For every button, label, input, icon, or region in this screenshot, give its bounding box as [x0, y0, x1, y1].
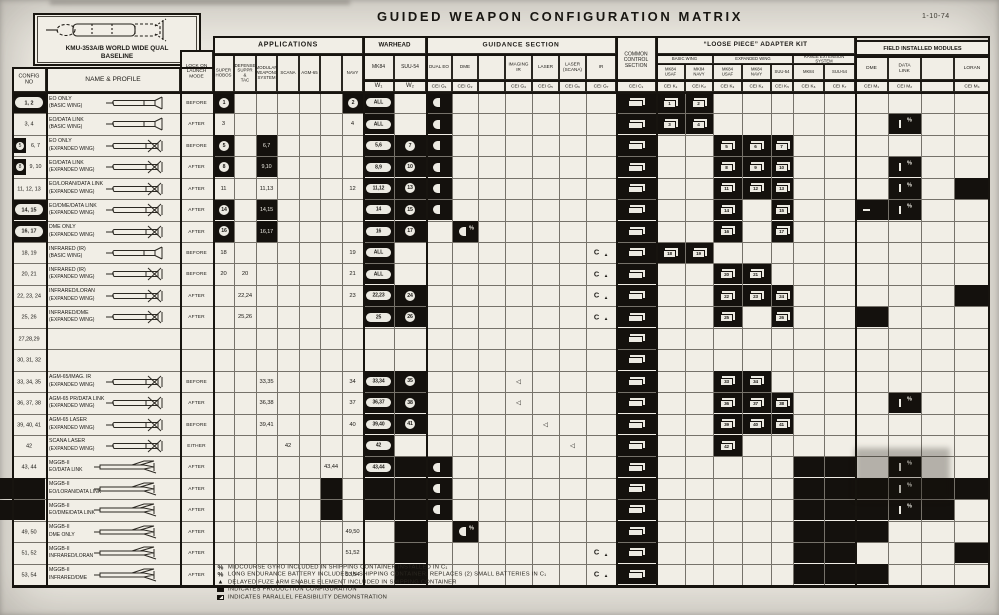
- mark-3d-box: [628, 122, 643, 129]
- mark-battery-bar: [899, 506, 902, 514]
- grid-line-v: [180, 50, 182, 585]
- header-guidance-col-label: IR: [586, 57, 616, 77]
- mark-circle-number: 35: [405, 376, 415, 386]
- launch-mode-cell: AFTER: [180, 456, 213, 477]
- grid-line-h: [213, 54, 616, 56]
- mark-config-number: 36,38: [256, 392, 277, 413]
- config-cell-blackout: [0, 478, 45, 498]
- mark-filled-cell: [856, 521, 888, 541]
- header-loose-col-label: MK84 USAF: [656, 65, 685, 79]
- weapon-profile-icon: [104, 289, 174, 303]
- config-chip-number: 8: [16, 163, 24, 171]
- mark-3d-box-number: 14: [720, 207, 733, 215]
- header-field-col-label: DATA LINK: [888, 58, 921, 78]
- header-guidance-cei: [478, 80, 505, 92]
- grid-line-v: [855, 36, 857, 585]
- grid-line-v: [363, 36, 365, 585]
- mark-3d-box-number: 10: [775, 164, 788, 172]
- mark-3d-box-number: 2: [692, 100, 705, 108]
- header-loose-cei-label: CEI K₅: [771, 81, 793, 92]
- mark-3d-box: [628, 229, 643, 236]
- mark-3d-box-number: 21: [749, 271, 762, 279]
- mark-pill-text: 5,6: [366, 141, 391, 150]
- mark-filled-cell: [794, 543, 824, 563]
- legend-text: MIDCOURSE GYRO INCLUDED IN SHIPPING CONT…: [228, 564, 648, 571]
- ir-half-circle-glyph: C: [592, 269, 601, 280]
- mark-pill-text: 43,44: [366, 463, 391, 472]
- mark-filled-cell: [856, 500, 888, 520]
- mark-3d-box-number: 41: [775, 421, 788, 429]
- mark-pill-text: ALL: [366, 248, 391, 257]
- header-guidance-cei-label: CEI G₇: [586, 81, 616, 92]
- legend-production-square: [217, 587, 224, 592]
- mark-3d-box: [628, 529, 643, 536]
- weapon-profile-icon: [92, 568, 178, 582]
- mark-filled-cell: [794, 457, 824, 477]
- mark-3d-box-number: 26: [775, 314, 788, 322]
- grid-line-v: [656, 36, 658, 585]
- weapon-profile-icon: [104, 225, 174, 239]
- weapon-profile-icon: [104, 182, 174, 196]
- mark-filled-cell: [395, 543, 426, 563]
- weapon-profile-icon: [92, 503, 178, 517]
- mark-config-number: 25,26: [234, 306, 256, 327]
- header-group-guidance-label: GUIDANCE SECTION: [426, 36, 616, 54]
- fuze-triangle-glyph: ▲: [602, 315, 610, 323]
- grid-line-v: [46, 67, 48, 585]
- mark-circle-number: 24: [405, 291, 415, 301]
- mark-filled-cell: [955, 178, 990, 198]
- mark-3d-box: [628, 250, 643, 257]
- mark-battery-percent: %: [905, 202, 914, 210]
- mark-filled-cell: [825, 543, 855, 563]
- mark-config-number: 37: [342, 392, 363, 413]
- page-title: GUIDED WEAPON CONFIGURATION MATRIX: [300, 8, 820, 24]
- mark-filled-cell: [321, 500, 342, 520]
- mark-3d-box: [628, 507, 643, 514]
- mark-3d-box-number: 23: [749, 293, 762, 301]
- ir-half-circle-glyph: C: [592, 290, 601, 301]
- weapon-profile-icon: [104, 96, 174, 110]
- mark-gyro-percent: %: [467, 224, 476, 232]
- scan-smudge-right: [855, 448, 950, 500]
- mark-battery-percent: %: [905, 502, 914, 510]
- mark-circle-number: 15: [405, 205, 415, 215]
- mark-pill-text: 39,40: [366, 420, 391, 429]
- mark-open-triangle: ◁: [505, 371, 532, 392]
- legend-text: DELAYED FUZE ARM ENABLE ELEMENT INCLUDED…: [228, 579, 648, 586]
- mark-circle-number: 26: [405, 312, 415, 322]
- fuze-triangle-glyph: ▲: [602, 272, 610, 280]
- mark-open-triangle: ◁: [559, 435, 586, 456]
- header-app-col-label: SUPER HOBOS: [213, 55, 234, 91]
- launch-mode-cell: AFTER: [180, 306, 213, 327]
- mark-filled-cell: [825, 564, 855, 584]
- mark-dash: [863, 209, 870, 211]
- header-app-col-label: SCANA: [277, 55, 299, 91]
- mark-open-triangle: ◁: [505, 392, 532, 413]
- launch-mode-cell: EITHER: [180, 435, 213, 456]
- header-loose-cei-label: CEI K₆: [793, 81, 824, 92]
- mark-filled-cell: [825, 500, 855, 520]
- mark-pill-text: 33,34: [366, 377, 391, 386]
- config-cell: 18, 19: [12, 242, 46, 263]
- weapon-profile-icon: [104, 203, 174, 217]
- header-loose-col-label: MK84 NAVY: [685, 65, 713, 79]
- mark-circle-number: 2: [348, 98, 358, 108]
- launch-mode-cell: AFTER: [180, 499, 213, 520]
- config-cell: 9, 10: [26, 156, 45, 177]
- missile-icon: [42, 17, 192, 43]
- mark-feasibility-half-circle: [433, 120, 440, 129]
- mark-3d-box-number: 25: [720, 314, 733, 322]
- config-cell: 42: [12, 435, 46, 456]
- mark-3d-box: [628, 186, 643, 193]
- mark-feasibility-half-circle: [459, 527, 466, 536]
- mark-filled-cell: [922, 500, 954, 520]
- legend-text: INDICATES PARALLEL FEASIBILITY DEMONSTRA…: [228, 594, 648, 601]
- mark-3d-box: [628, 100, 643, 107]
- mark-3d-box-number: 5: [720, 143, 733, 151]
- scan-smudge-top: [50, 0, 350, 5]
- weapon-profile-icon: [104, 117, 174, 131]
- header-group-common-control-label: COMMON CONTROL SECTION: [616, 42, 656, 78]
- mark-config-number: 18: [213, 242, 234, 263]
- mark-filled-cell: [794, 500, 824, 520]
- config-cell: 53, 54: [12, 564, 46, 585]
- grid-line-h: [180, 50, 213, 52]
- header-field-cei: [921, 80, 954, 92]
- mark-config-number: 21: [342, 263, 363, 284]
- legend-feasibility-square: [217, 595, 224, 600]
- mark-3d-box: [628, 165, 643, 172]
- header-guidance-cei-label: CEI G₂: [452, 81, 478, 92]
- mark-config-number: 11: [213, 178, 234, 199]
- mark-filled-cell: [825, 521, 855, 541]
- config-cell: 20, 21: [12, 263, 46, 284]
- mark-config-number-light: 6,7: [256, 135, 277, 156]
- mark-filled-cell: [395, 478, 426, 498]
- mark-circle-number: 13: [405, 183, 415, 193]
- config-cell: 16, 17: [15, 226, 43, 236]
- mark-pill-text: ALL: [366, 120, 391, 129]
- launch-mode-cell: AFTER: [180, 542, 213, 563]
- header-guidance-cei-label: CEI G₁: [426, 81, 452, 92]
- config-cell: 3, 4: [12, 113, 46, 134]
- mark-3d-box: [628, 315, 643, 322]
- grid-line-h: [855, 56, 990, 58]
- mark-battery-bar: [899, 163, 902, 171]
- mark-circle-number: 38: [405, 398, 415, 408]
- mark-3d-box: [628, 272, 643, 279]
- mark-3d-box-number: 11: [720, 185, 733, 193]
- mark-config-number: 51,52: [342, 542, 363, 563]
- legend-text: LONG ENDURANCE BATTERY INCLUDED IN SHIPP…: [228, 571, 648, 578]
- mark-3d-box-number: 42: [720, 443, 733, 451]
- mark-3d-box-number: 36: [720, 400, 733, 408]
- mark-config-number-light: 16,17: [256, 221, 277, 242]
- mark-open-triangle: ◁: [532, 414, 559, 435]
- header-loose-cei-label: CEI K₁: [656, 81, 685, 92]
- mark-filled-cell: [364, 478, 394, 498]
- mark-circle-number: 16: [219, 226, 229, 236]
- fuze-triangle-glyph: ▲: [602, 294, 610, 302]
- mark-filled-cell: [856, 307, 888, 327]
- mark-3d-box-number: 12: [749, 185, 762, 193]
- header-field-col: [921, 56, 954, 80]
- mark-filled-cell: [364, 500, 394, 520]
- header-common-cei-label: CEI C₁: [616, 81, 656, 92]
- header-field-cei-label: CEI M₁: [855, 81, 888, 92]
- mark-3d-box: [628, 550, 643, 557]
- mark-config-number: 19: [342, 242, 363, 263]
- legend-text: INDICATES PRODUCTION CONFIGURATION: [228, 586, 648, 593]
- date-label: 1-10-74: [922, 13, 982, 23]
- mark-feasibility-half-circle: [433, 184, 440, 193]
- mark-pill-text: 8,9: [366, 163, 391, 172]
- legend-triangle-symbol: ▲: [216, 578, 225, 586]
- mark-3d-box-number: 34: [749, 378, 762, 386]
- mark-pill-text: 36,37: [366, 398, 391, 407]
- mark-filled-cell: [794, 478, 824, 498]
- mark-battery-bar: [899, 206, 902, 214]
- mark-circle-number: 17: [405, 226, 415, 236]
- mark-pill-text: 42: [366, 441, 391, 450]
- mark-filled-cell: [794, 521, 824, 541]
- mark-pill-text: 14: [366, 205, 391, 214]
- mark-3d-box-number: 22: [720, 293, 733, 301]
- header-field-col-label: LORAN: [954, 58, 990, 78]
- mark-circle-number: 10: [405, 162, 415, 172]
- mark-config-number: 43,44: [320, 456, 342, 477]
- header-config-label: CONFIG NO: [12, 69, 46, 90]
- header-field-cei-label: CEI M₂: [888, 81, 921, 92]
- mark-3d-box: [628, 400, 643, 407]
- grid-line-v: [426, 36, 428, 585]
- weapon-profile-icon: [92, 525, 178, 539]
- header-loose-cei-label: CEI K₂: [685, 81, 713, 92]
- mark-feasibility-half-circle: [433, 98, 440, 107]
- header-loose-col-label: MK84: [793, 65, 824, 79]
- mark-gyro-percent: %: [467, 524, 476, 532]
- mark-3d-box-number: 6: [749, 143, 762, 151]
- launch-mode-cell: AFTER: [180, 113, 213, 134]
- launch-mode-cell: AFTER: [180, 199, 213, 220]
- header-group-applications-label: APPLICATIONS: [213, 36, 363, 54]
- mark-3d-box-number: 19: [692, 250, 705, 258]
- table-row: [12, 349, 990, 370]
- weapon-profile-icon: [104, 439, 174, 453]
- grid-line-h: [656, 54, 855, 56]
- config-cell: 51, 52: [12, 542, 46, 563]
- launch-mode-cell: AFTER: [180, 221, 213, 242]
- mark-3d-box-number: 20: [720, 271, 733, 279]
- mark-config-number-light: 14,15: [256, 199, 277, 220]
- header-field-col-label: DME: [855, 58, 888, 78]
- header-group-field-modules-label: FIELD INSTALLED MODULES: [855, 42, 990, 55]
- launch-mode-cell: BEFORE: [180, 263, 213, 284]
- mark-feasibility-half-circle: [433, 205, 440, 214]
- grid-line-h: [12, 67, 213, 69]
- mark-3d-box-number: 13: [775, 185, 788, 193]
- weapon-profile-icon: [104, 375, 174, 389]
- config-chip-number: 5: [16, 142, 24, 150]
- ir-half-circle-glyph: C: [592, 547, 601, 558]
- config-cell: 39, 40, 41: [12, 414, 46, 435]
- mark-config-number: 4: [342, 113, 363, 134]
- mark-circle-number: 7: [405, 141, 415, 151]
- config-cell: 6, 7: [26, 135, 45, 156]
- header-warhead-cei-label: W₂: [394, 80, 426, 92]
- mark-pill-text: ALL: [366, 270, 391, 279]
- launch-mode-cell: AFTER: [180, 478, 213, 499]
- mark-config-number: 42: [277, 435, 299, 456]
- launch-mode-cell: AFTER: [180, 392, 213, 413]
- header-loose-col-label: SUU-54: [771, 65, 793, 79]
- mark-battery-percent: %: [905, 395, 914, 403]
- mark-circle-number: 41: [405, 419, 415, 429]
- mark-config-number: 20: [234, 263, 256, 284]
- header-guidance-col-label: LASER (SCANA): [559, 57, 586, 77]
- mark-3d-box-number: 24: [775, 293, 788, 301]
- mark-config-number: 33,35: [256, 371, 277, 392]
- mark-config-number: 49,50: [342, 521, 363, 542]
- grid-line-h: [363, 80, 990, 82]
- weapon-profile-icon: [104, 396, 174, 410]
- mark-feasibility-half-circle: [433, 505, 440, 514]
- weapon-profile-icon: [104, 160, 174, 174]
- mark-feasibility-half-circle: [433, 484, 440, 493]
- mark-pill-text: 25: [366, 313, 391, 322]
- mark-3d-box: [628, 486, 643, 493]
- mark-config-number: 22,24: [234, 285, 256, 306]
- config-cell: 49, 50: [12, 521, 46, 542]
- header-group-warhead-label: WARHEAD: [363, 36, 426, 54]
- header-loose-col-label: MK84 USAF: [713, 65, 742, 79]
- header-app-col-label: DEFENSE SUPPR & TAC: [234, 55, 256, 91]
- header-app-col-label: MODULAR WEAPONS SYSTEM: [256, 55, 277, 91]
- fuze-triangle-glyph: ▲: [602, 551, 610, 559]
- weapon-profile-icon: [92, 460, 178, 474]
- mark-3d-box: [628, 357, 643, 364]
- ir-half-circle-glyph: C: [592, 312, 601, 323]
- config-cell: 33, 34, 35: [12, 371, 46, 392]
- header-name-label: NAME & PROFILE: [46, 69, 180, 90]
- mark-3d-box-number: 39: [720, 421, 733, 429]
- header-warhead-cei-label: W₁: [363, 80, 394, 92]
- mark-filled-cell: [395, 521, 426, 541]
- header-loose-cei-label: CEI K₄: [742, 81, 771, 92]
- mark-config-number: 11,13: [256, 178, 277, 199]
- mark-filled-cell: [395, 500, 426, 520]
- config-cell: 1, 2: [15, 98, 43, 108]
- mark-circle-number: 5: [219, 141, 229, 151]
- mark-config-number: 23: [342, 285, 363, 306]
- mark-3d-box: [628, 336, 643, 343]
- mark-config-number: 39,41: [256, 414, 277, 435]
- launch-mode-cell: BEFORE: [180, 371, 213, 392]
- launch-mode-cell: AFTER: [180, 178, 213, 199]
- mark-pill-text: ALL: [366, 98, 391, 107]
- mark-circle-number: 14: [219, 205, 229, 215]
- header-app-col-label: NAVY: [342, 55, 363, 91]
- launch-mode-cell: BEFORE: [180, 135, 213, 156]
- mark-3d-box-number: 15: [775, 207, 788, 215]
- mark-3d-box-number: 3: [663, 121, 676, 129]
- header-group-loose-piece-label: “LOOSE PIECE” ADAPTER KIT: [656, 36, 855, 54]
- mark-feasibility-half-circle: [433, 141, 440, 150]
- mark-3d-box-number: 37: [749, 400, 762, 408]
- config-cell: 30, 31, 32: [12, 349, 46, 370]
- fuze-triangle-glyph: ▲: [602, 251, 610, 259]
- grid-line-v: [616, 36, 618, 585]
- launch-mode-cell: BEFORE: [180, 414, 213, 435]
- config-cell: 22, 23, 24: [12, 285, 46, 306]
- config-cell-blackout: [0, 500, 45, 520]
- weapon-profile-icon: [92, 482, 178, 496]
- header-app-col: [320, 54, 342, 92]
- header-field-cei-label: CEI M₄: [954, 81, 990, 92]
- ir-half-circle-glyph: C: [592, 247, 601, 258]
- header-launch-label: LOCK ON LAUNCH MODE: [180, 52, 213, 90]
- weapon-profile-icon: [92, 546, 178, 560]
- scanned-document-page: GUIDED WEAPON CONFIGURATION MATRIX 1-10-…: [0, 0, 999, 615]
- mark-circle-number: 1: [219, 98, 229, 108]
- mark-3d-box: [628, 143, 643, 150]
- config-cell: 36, 37, 38: [12, 392, 46, 413]
- mark-feasibility-half-circle: [433, 463, 440, 472]
- weapon-profile-icon: [104, 246, 174, 260]
- mark-filled-cell: [825, 457, 855, 477]
- header-app-col-label: AGM-65: [299, 55, 320, 91]
- mark-3d-box: [628, 207, 643, 214]
- mark-3d-box-number: 16: [720, 228, 733, 236]
- weapon-profile-icon: [104, 267, 174, 281]
- mark-filled-cell: [856, 564, 888, 584]
- mark-3d-box-number: 4: [692, 121, 705, 129]
- launch-mode-cell: AFTER: [180, 521, 213, 542]
- mark-3d-box: [628, 379, 643, 386]
- header-loose-col-label: MK84 NAVY: [742, 65, 771, 79]
- mark-circle-number: 8: [219, 162, 229, 172]
- mark-3d-box-number: 18: [663, 250, 676, 258]
- mark-config-number: 20: [213, 263, 234, 284]
- grid-line-v: [213, 36, 215, 585]
- grid-line-v: [988, 36, 990, 585]
- launch-mode-cell: AFTER: [180, 285, 213, 306]
- config-cell: 27,28,29: [12, 328, 46, 349]
- mark-filled-cell: [955, 478, 990, 498]
- mark-3d-box: [628, 443, 643, 450]
- mark-3d-box-number: 7: [775, 143, 788, 151]
- baseline-label-line2: BASELINE: [38, 52, 196, 61]
- config-cell: 14, 15: [15, 205, 43, 215]
- mark-pill-text: 11,12: [366, 184, 391, 193]
- weapon-profile-icon: [104, 418, 174, 432]
- mark-battery-bar: [899, 399, 902, 407]
- header-loose-cei-label: CEI K₃: [713, 81, 742, 92]
- mark-3d-box-number: 38: [775, 400, 788, 408]
- launch-mode-cell: BEFORE: [180, 242, 213, 263]
- mark-feasibility-half-circle: [433, 163, 440, 172]
- header-guidance-cei-label: CEI G₄: [505, 81, 532, 92]
- mark-battery-bar: [899, 184, 902, 192]
- mark-3d-box-number: 17: [775, 228, 788, 236]
- mark-3d-box: [628, 422, 643, 429]
- mark-pill-text: 22,23: [366, 291, 391, 300]
- mark-filled-cell: [321, 478, 342, 498]
- mark-filled-cell: [856, 200, 888, 220]
